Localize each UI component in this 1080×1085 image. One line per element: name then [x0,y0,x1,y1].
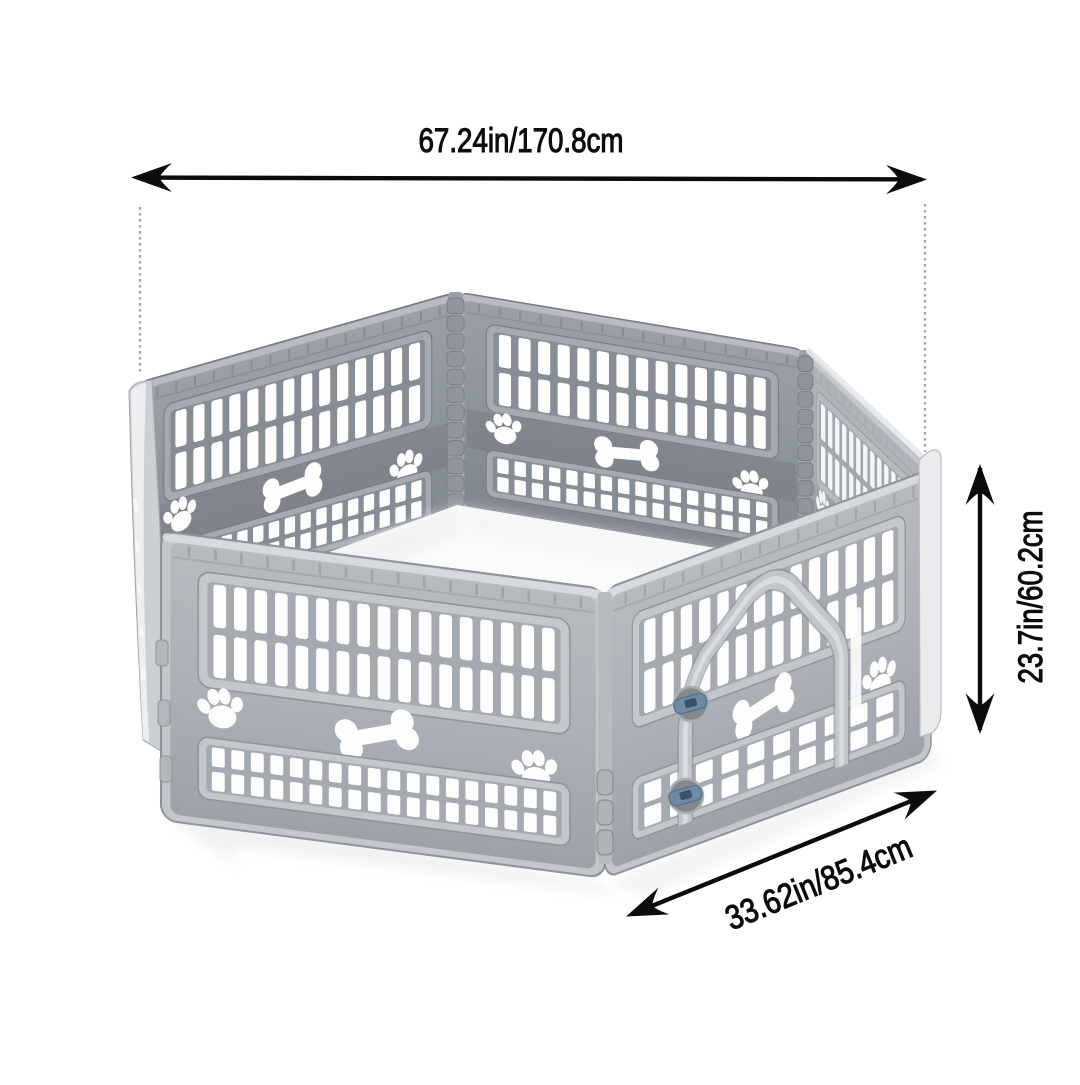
svg-text:67.24in/170.8cm: 67.24in/170.8cm [419,122,624,160]
svg-text:23.7in/60.2cm: 23.7in/60.2cm [1012,511,1050,684]
